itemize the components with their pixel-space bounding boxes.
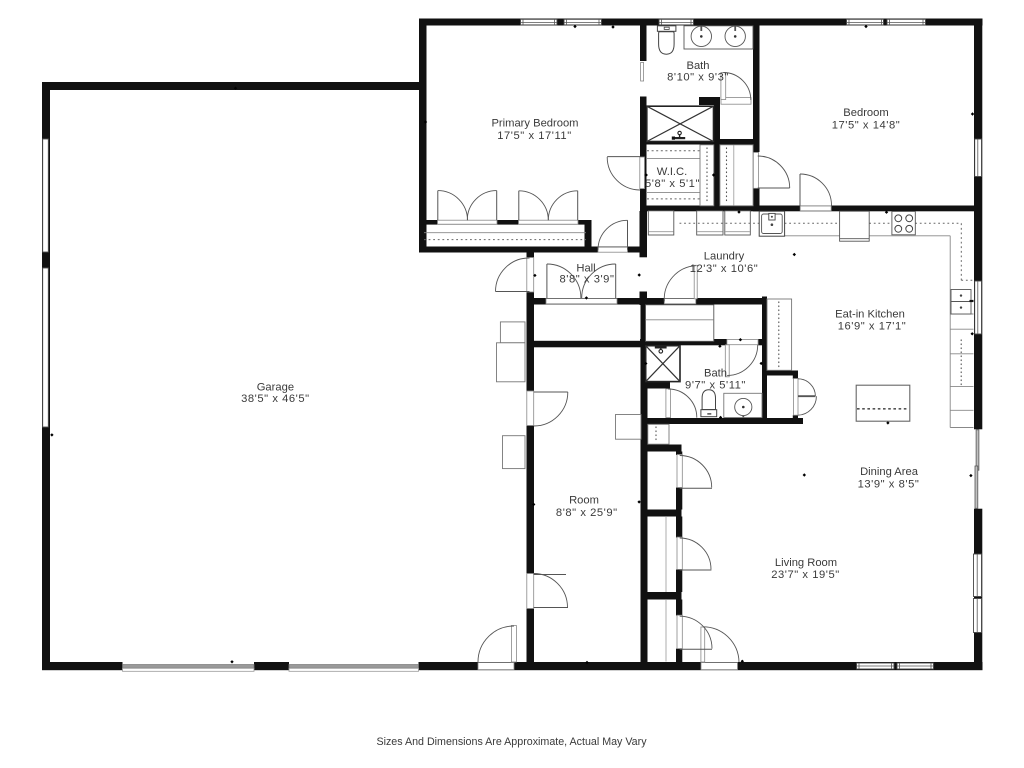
svg-text:W.I.C.: W.I.C. [657, 166, 687, 178]
svg-text:38'5" x 46'5": 38'5" x 46'5" [241, 393, 310, 405]
svg-text:16'9" x 17'1": 16'9" x 17'1" [838, 321, 907, 333]
svg-text:8'10" x 9'3": 8'10" x 9'3" [667, 72, 729, 84]
svg-text:12'3" x 10'6": 12'3" x 10'6" [690, 263, 759, 275]
svg-text:Room: Room [569, 495, 599, 507]
svg-text:13'9" x 8'5": 13'9" x 8'5" [858, 479, 920, 491]
svg-text:Eat-in Kitchen: Eat-in Kitchen [835, 309, 905, 321]
svg-text:Bedroom: Bedroom [843, 107, 888, 119]
svg-text:17'5" x 14'8": 17'5" x 14'8" [832, 119, 901, 131]
svg-text:5'8" x 5'1": 5'8" x 5'1" [645, 178, 700, 190]
svg-text:Primary Bedroom: Primary Bedroom [491, 118, 578, 130]
svg-text:Dining Area: Dining Area [860, 466, 919, 478]
svg-text:8'8" x 3'9": 8'8" x 3'9" [560, 274, 615, 286]
svg-text:Bath: Bath [686, 60, 709, 72]
svg-text:23'7" x 19'5": 23'7" x 19'5" [771, 569, 840, 581]
svg-text:9'7" x 5'11": 9'7" x 5'11" [685, 379, 746, 391]
svg-text:17'5" x 17'11": 17'5" x 17'11" [497, 130, 571, 142]
svg-text:Garage: Garage [257, 382, 294, 394]
svg-text:8'8" x 25'9": 8'8" x 25'9" [556, 507, 618, 519]
svg-text:Sizes And Dimensions Are Appro: Sizes And Dimensions Are Approximate, Ac… [376, 736, 647, 748]
svg-text:Laundry: Laundry [704, 251, 745, 263]
svg-text:Living Room: Living Room [775, 557, 837, 569]
svg-text:Bath: Bath [704, 367, 727, 379]
